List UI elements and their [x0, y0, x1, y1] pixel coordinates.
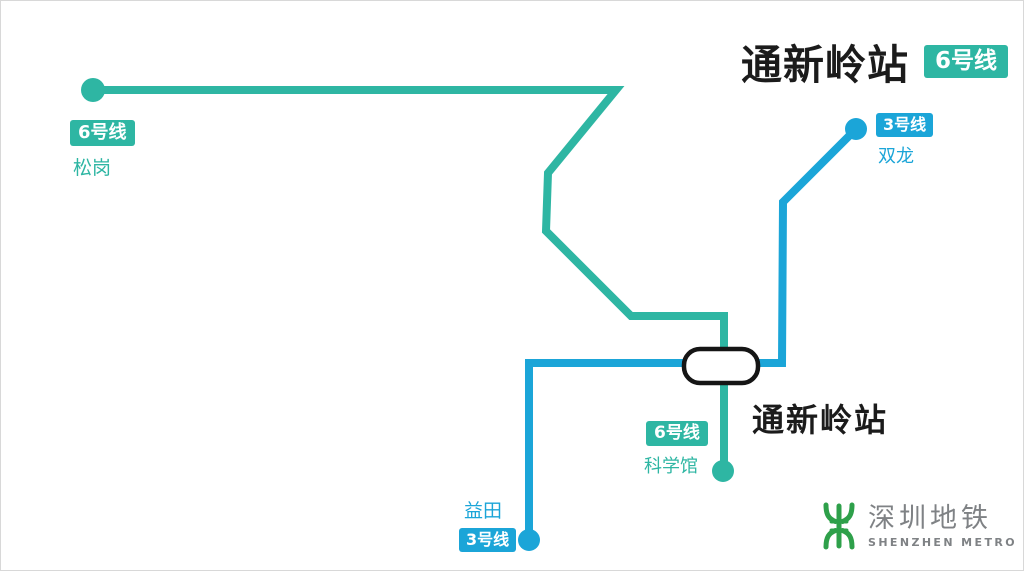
terminal-dot-kexueguan [712, 460, 734, 482]
shenzhen-metro-brand: 深圳地铁 SHENZHEN METRO [821, 501, 1017, 551]
terminal-name-songgang: 松岗 [73, 153, 111, 180]
shenzhen-metro-logo-icon [821, 501, 857, 551]
brand-text-group: 深圳地铁 SHENZHEN METRO [868, 503, 1017, 549]
page-title: 通新岭站 [741, 31, 909, 91]
station-marker [684, 349, 758, 383]
line6-badge-title: 6号线 [924, 45, 1008, 78]
terminal-tag-kexueguan: 6号线 科学馆 [644, 421, 708, 478]
line6-badge-songgang: 6号线 [70, 120, 135, 146]
terminal-dot-shuanglong [845, 118, 867, 140]
terminal-tag-yitian: 益田 3号线 [459, 496, 516, 552]
line6-badge-kexueguan: 6号线 [646, 421, 708, 446]
line3-path [529, 129, 856, 540]
line3-badge-yitian: 3号线 [459, 528, 516, 552]
brand-name-en: SHENZHEN METRO [868, 536, 1017, 549]
line6-path [93, 90, 724, 471]
terminal-name-kexueguan: 科学馆 [644, 452, 698, 478]
station-label: 通新岭站 [752, 395, 888, 441]
terminal-name-yitian: 益田 [464, 496, 502, 523]
metro-map-canvas: 通新岭站 6号线 6号线 松岗 3号线 双龙 通新岭站 6号线 科学馆 益田 3… [0, 0, 1024, 571]
terminal-name-shuanglong: 双龙 [878, 142, 914, 168]
terminal-tag-songgang: 6号线 松岗 [70, 120, 135, 180]
line3-badge-shuanglong: 3号线 [876, 113, 933, 137]
terminal-dot-songgang [81, 78, 105, 102]
terminal-tag-shuanglong: 3号线 双龙 [876, 113, 933, 168]
terminal-dot-yitian [518, 529, 540, 551]
page-title-group: 通新岭站 6号线 [741, 31, 1008, 91]
brand-name-cn: 深圳地铁 [868, 503, 1017, 534]
